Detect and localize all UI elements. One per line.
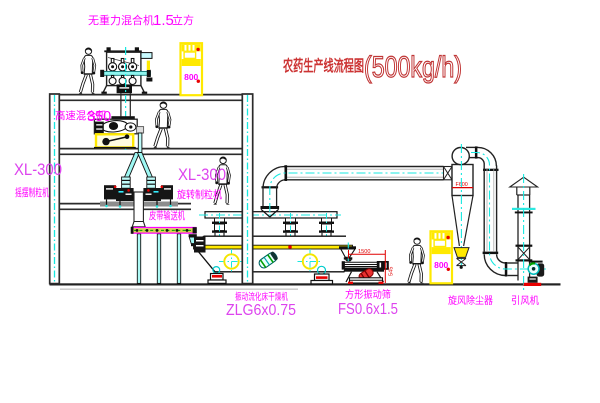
svg-text:立方: 立方 [172, 13, 194, 27]
svg-text:545: 545 [389, 267, 395, 276]
svg-text:FS0.6x1.5: FS0.6x1.5 [338, 301, 398, 318]
svg-text:XL-300: XL-300 [14, 161, 62, 179]
svg-text:XL-300: XL-300 [178, 166, 226, 184]
svg-text:农药生产线流程图: 农药生产线流程图 [282, 56, 364, 75]
svg-text:皮带输送机: 皮带输送机 [149, 209, 185, 222]
svg-text:1500: 1500 [358, 249, 370, 255]
svg-text:ZLG6x0.75: ZLG6x0.75 [226, 302, 296, 319]
svg-text:1.5: 1.5 [153, 12, 174, 29]
svg-text:引风机: 引风机 [511, 294, 539, 307]
svg-text:方形振动筛: 方形振动筛 [345, 288, 391, 301]
svg-text:旋转制粒机: 旋转制粒机 [177, 188, 222, 201]
svg-text:(500kg/h): (500kg/h) [364, 51, 462, 84]
svg-text:旋风除尘器: 旋风除尘器 [448, 294, 493, 307]
svg-text:摇摆制粒机: 摇摆制粒机 [15, 186, 49, 199]
svg-text:无重力混合机: 无重力混合机 [88, 13, 154, 27]
svg-text:350: 350 [87, 109, 111, 125]
